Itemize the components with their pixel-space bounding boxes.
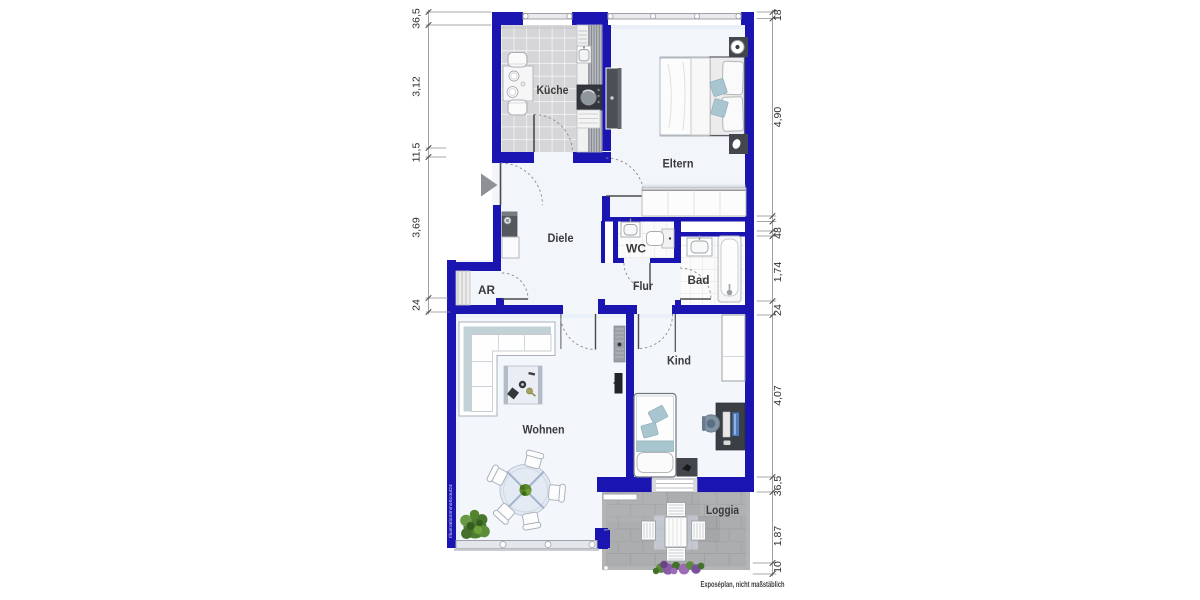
svg-text:Diele: Diele <box>548 231 574 245</box>
svg-text:4,07: 4,07 <box>772 385 784 406</box>
svg-text:Flur: Flur <box>633 279 653 293</box>
svg-text:Kind: Kind <box>667 354 691 368</box>
svg-text:IllustrationImmoScout24: IllustrationImmoScout24 <box>448 484 453 538</box>
svg-text:Loggia: Loggia <box>706 503 739 517</box>
svg-text:3,69: 3,69 <box>411 217 423 238</box>
svg-text:48: 48 <box>772 227 784 239</box>
svg-text:AR: AR <box>478 283 495 297</box>
svg-text:Wohnen: Wohnen <box>523 423 565 437</box>
svg-text:4,90: 4,90 <box>772 107 784 128</box>
svg-text:WC: WC <box>626 242 646 256</box>
svg-text:Küche: Küche <box>537 83 569 97</box>
svg-text:10: 10 <box>772 561 784 573</box>
svg-text:Eltern: Eltern <box>663 157 694 171</box>
svg-text:1,74: 1,74 <box>772 262 784 283</box>
svg-text:Exposéplan, nicht maßstäblich: Exposéplan, nicht maßstäblich <box>701 579 785 589</box>
svg-text:18: 18 <box>772 9 784 21</box>
svg-text:1,87: 1,87 <box>772 526 784 547</box>
svg-text:24: 24 <box>411 299 423 311</box>
svg-text:36,5: 36,5 <box>772 476 784 497</box>
svg-text:11,5: 11,5 <box>411 143 423 163</box>
svg-text:24: 24 <box>772 304 784 316</box>
svg-text:Bad: Bad <box>688 273 710 287</box>
svg-text:3,12: 3,12 <box>411 76 423 97</box>
svg-text:36,5: 36,5 <box>411 8 423 29</box>
